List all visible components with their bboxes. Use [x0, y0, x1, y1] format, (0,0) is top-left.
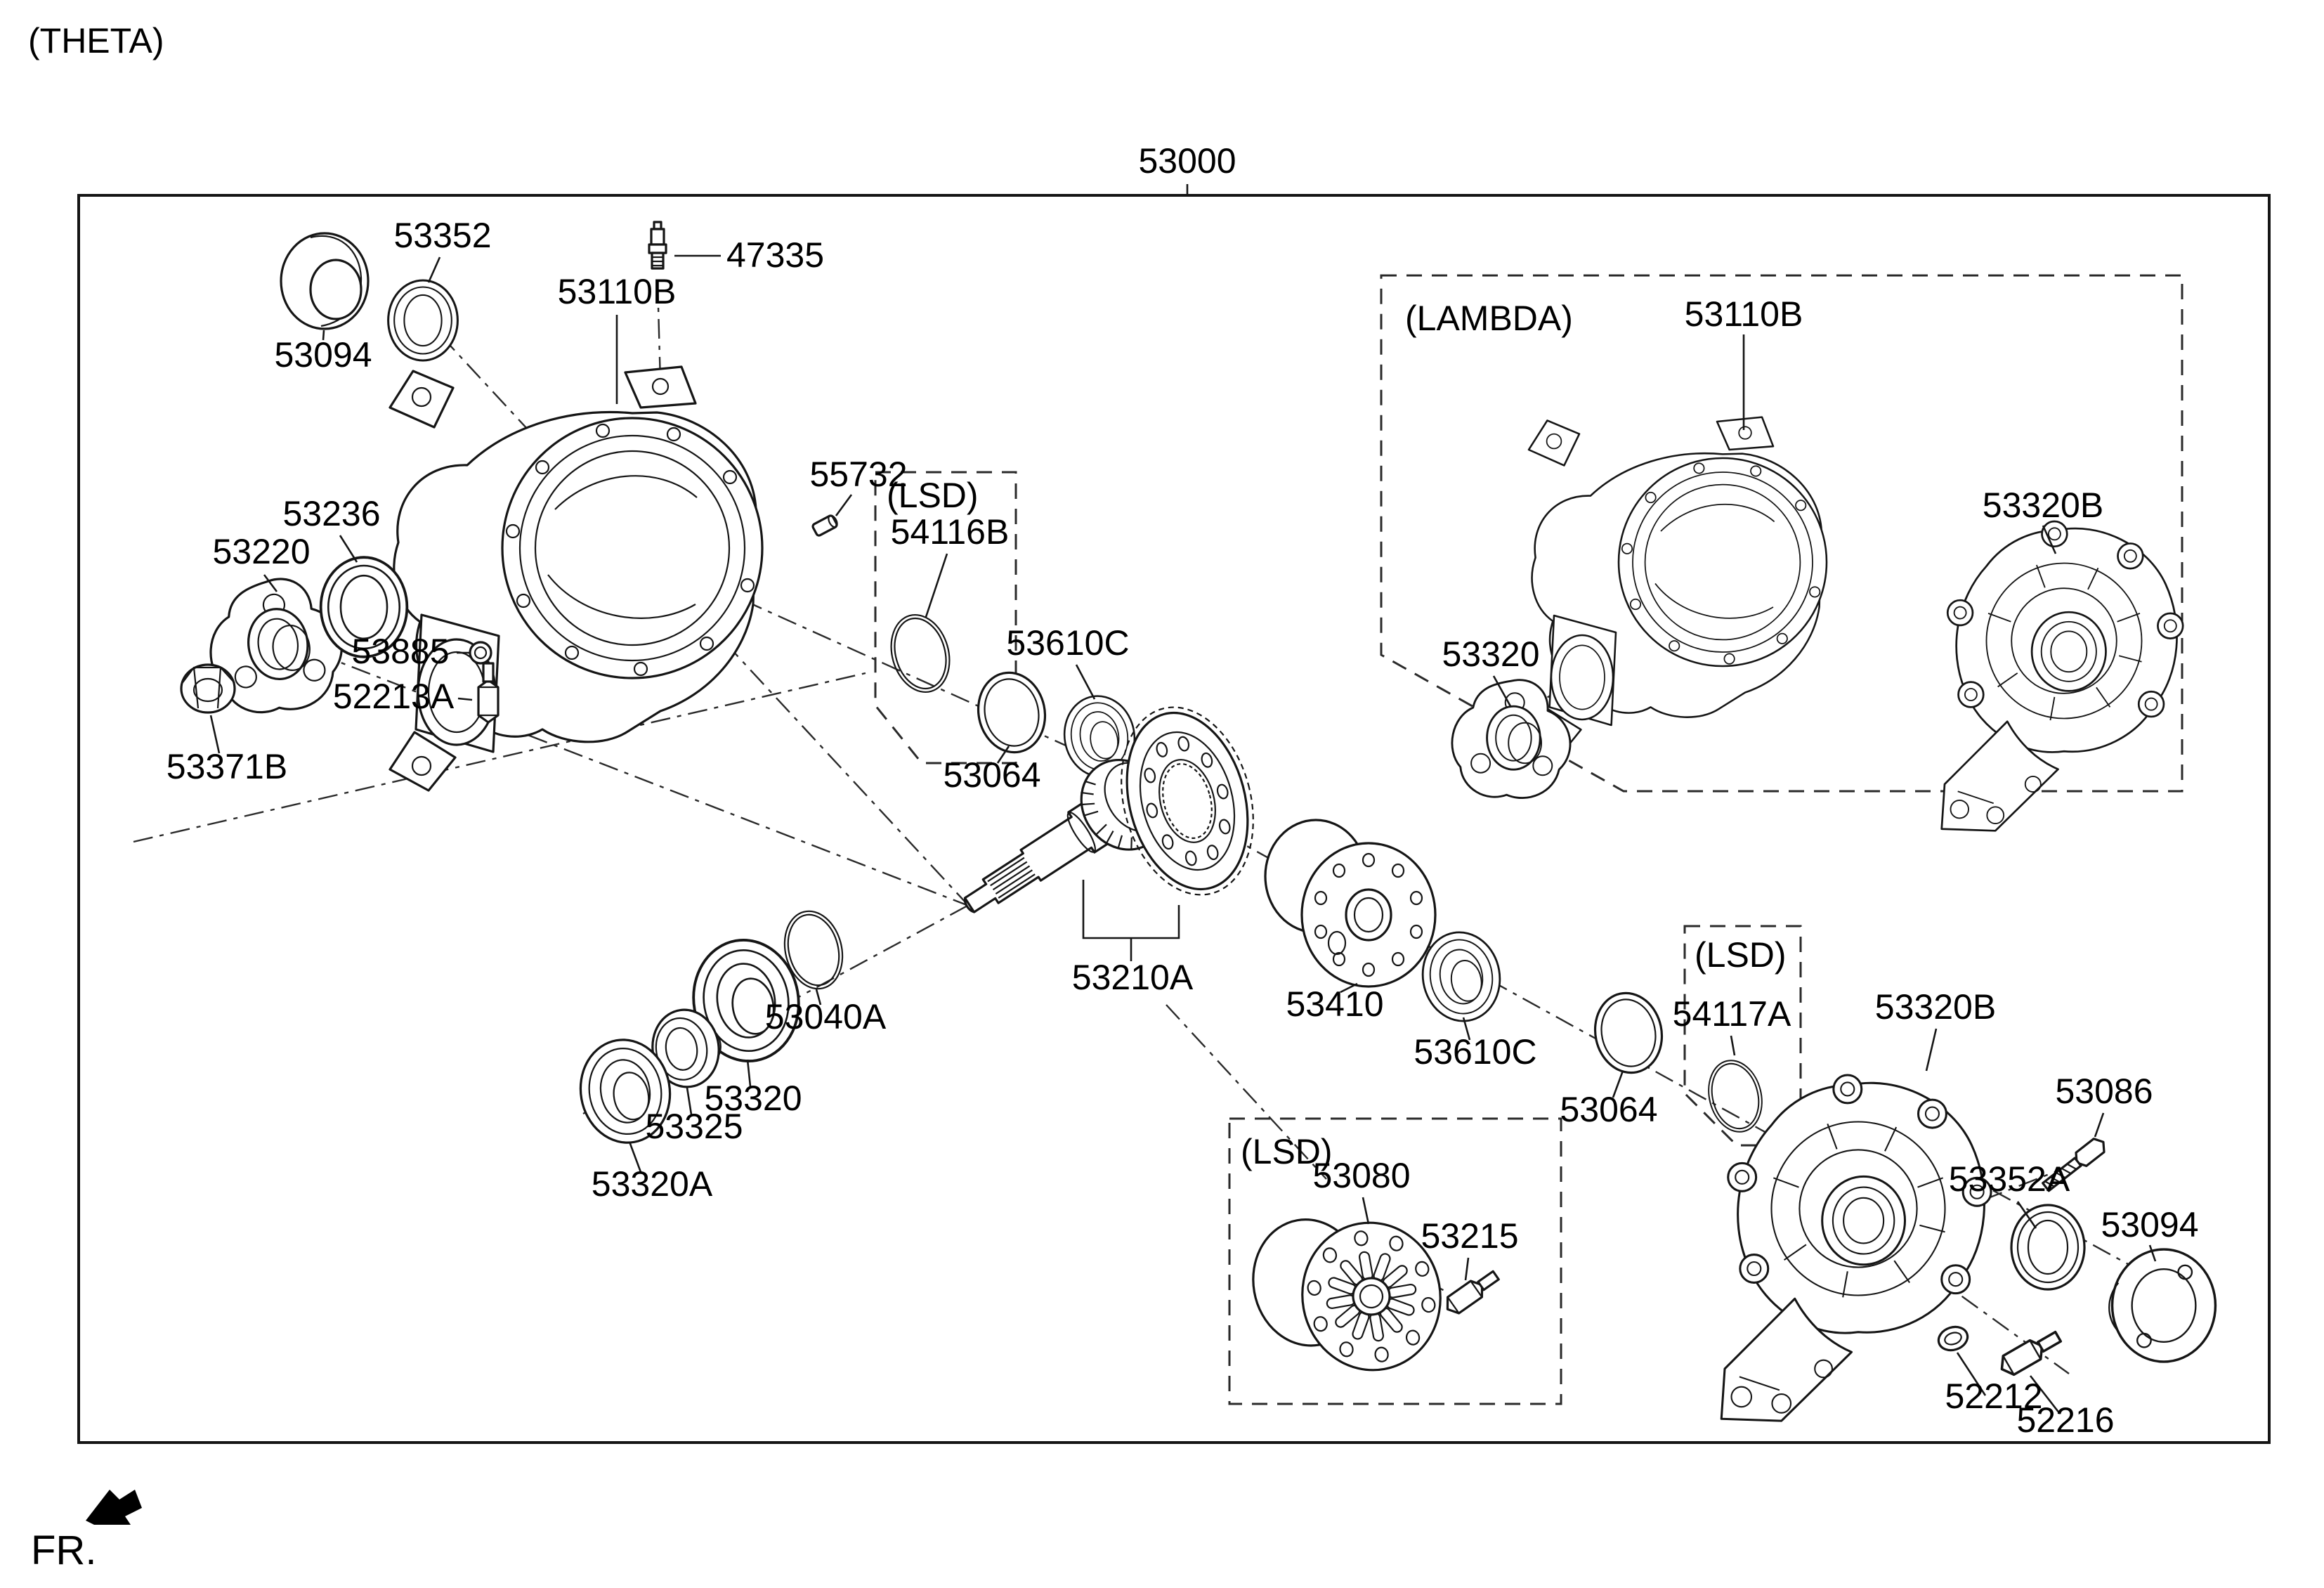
plug-52216-part [1997, 1327, 2063, 1379]
leader-53086 [2095, 1113, 2103, 1137]
label-bolt-53215[interactable]: 53215 [1421, 1216, 1518, 1256]
washer-52212 [1935, 1323, 1971, 1353]
parts-diagram-canvas: (THETA) 53000 53352 53094 47335 53110B 5… [0, 0, 2324, 1588]
variant-label: (THETA) [28, 21, 164, 60]
label-bolt-53086[interactable]: 53086 [2055, 1072, 2153, 1111]
leader-54117a [1731, 1036, 1735, 1055]
label-diff-case-53410[interactable]: 53410 [1286, 984, 1383, 1024]
label-carrier-53110b-lambda[interactable]: 53110B [1685, 294, 1803, 334]
label-washer-53885[interactable]: 53885 [351, 632, 449, 671]
label-plug-52213a[interactable]: 52213A [333, 677, 455, 716]
oil-seal-53352a [2011, 1205, 2084, 1289]
bolt-53215-part [1442, 1268, 1501, 1317]
oil-seal-53352 [389, 280, 458, 360]
dust-cap-right [2109, 1249, 2215, 1362]
leader-55732 [836, 495, 851, 516]
label-gear-set-53210a[interactable]: 53210A [1072, 958, 1194, 997]
label-seal-53236[interactable]: 53236 [282, 494, 380, 533]
label-nut-53371b[interactable]: 53371B [167, 747, 287, 786]
label-bearing-53320a[interactable]: 53320A [592, 1164, 713, 1204]
leader-54116b [926, 554, 947, 617]
label-breather-47335[interactable]: 47335 [726, 235, 824, 275]
carrier-housing-lambda [1529, 417, 1827, 756]
label-seal-53352a[interactable]: 53352A [1949, 1159, 2070, 1199]
cover-lambda [1942, 521, 2183, 831]
label-lambda-box: (LAMBDA) [1405, 299, 1573, 338]
label-assembly-53000[interactable]: 53000 [1138, 141, 1236, 181]
oring-54117a [1702, 1055, 1769, 1138]
label-spacer-53064-a[interactable]: 53064 [943, 755, 1040, 795]
lock-pin-55732 [812, 514, 839, 537]
front-label: FR. [31, 1528, 96, 1573]
front-direction-marker: FR. [31, 1490, 142, 1573]
label-seal-53352[interactable]: 53352 [393, 216, 491, 255]
breather-47335 [649, 222, 666, 268]
label-spacer-53325[interactable]: 53325 [645, 1107, 743, 1146]
leader-53236 [340, 535, 357, 562]
cover-right [1721, 1075, 1991, 1421]
label-carrier-53110b-left[interactable]: 53110B [558, 272, 677, 311]
label-cover-53320b-right[interactable]: 53320B [1875, 987, 1996, 1027]
label-cover-53320b-lambda[interactable]: 53320B [1983, 486, 2103, 525]
label-cap-53094-left[interactable]: 53094 [274, 335, 372, 375]
label-lsd-case-53080[interactable]: 53080 [1312, 1156, 1410, 1195]
label-oring-54116b[interactable]: 54116B [891, 512, 1010, 552]
leader-53352 [429, 257, 440, 282]
leader-bracket-53210a [1083, 880, 1179, 961]
label-plug-52216[interactable]: 52216 [2016, 1400, 2114, 1440]
front-arrow-icon [86, 1490, 142, 1525]
label-cap-53094-right[interactable]: 53094 [2101, 1205, 2198, 1244]
label-flange-53220[interactable]: 53220 [212, 532, 310, 571]
dust-cap-left [281, 233, 368, 329]
parts-group [181, 222, 2215, 1421]
spacer-53064-b [1588, 987, 1669, 1079]
label-lsd-diff-box: (LSD) [1695, 935, 1787, 975]
leader-53080 [1363, 1197, 1369, 1224]
label-oring-54117a[interactable]: 54117A [1673, 994, 1791, 1034]
label-lsd-pinion-box: (LSD) [887, 476, 979, 515]
label-shim-53040a[interactable]: 53040A [765, 997, 887, 1036]
leader-53320b-right [1926, 1029, 1936, 1071]
label-flange-53320-lambda[interactable]: 53320 [1442, 634, 1539, 674]
flange-nut-53371b [181, 665, 235, 712]
drain-washer-53885 [470, 642, 491, 663]
differential-case-53410 [1265, 820, 1435, 987]
label-bearing-53610c-b[interactable]: 53610C [1414, 1032, 1536, 1072]
leader-53215 [1465, 1258, 1468, 1280]
label-spacer-53064-b[interactable]: 53064 [1560, 1090, 1657, 1129]
oring-54116b [882, 608, 958, 699]
leader-53610c-a [1076, 665, 1095, 699]
label-bearing-53610c-a[interactable]: 53610C [1006, 623, 1129, 663]
carrier-housing-left [390, 367, 762, 790]
spacer-53064-a [971, 666, 1052, 758]
